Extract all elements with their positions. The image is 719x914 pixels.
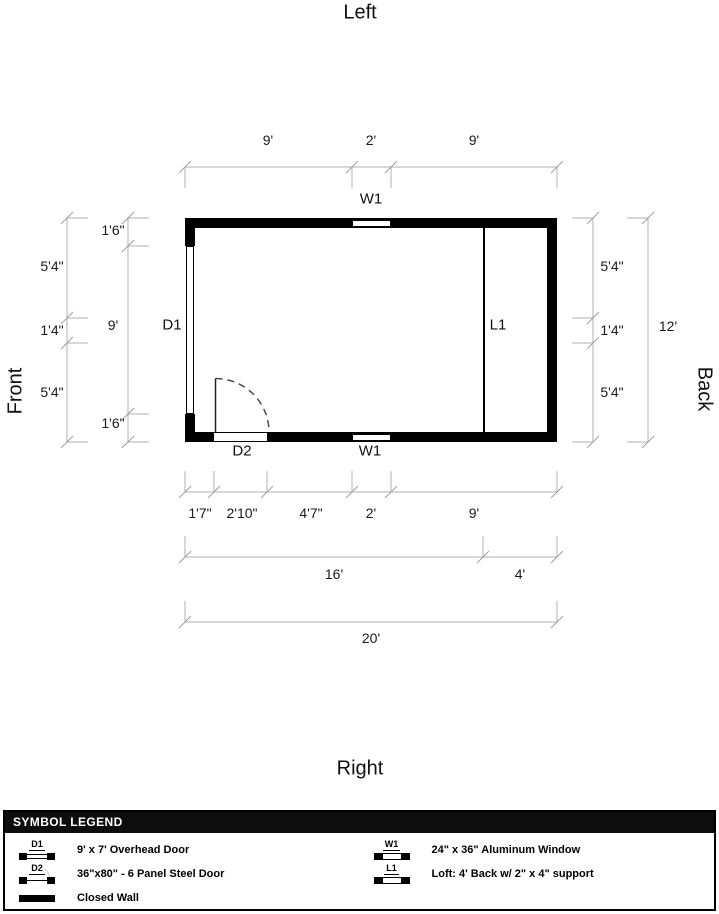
steel-door-icon: D2 <box>19 864 55 884</box>
window-w1-top-label: W1 <box>360 191 383 208</box>
dimension-slash-ticks <box>61 161 654 628</box>
legend-body: D1 9' x 7' Overhead Door D2 36" <box>5 833 714 910</box>
orientation-label-right-side: Right <box>337 758 384 781</box>
dimension-label: 5'4" <box>600 258 623 274</box>
legend-column-left: D1 9' x 7' Overhead Door D2 36" <box>5 838 360 910</box>
floorplan-drawing <box>0 0 719 700</box>
openings-and-fixtures <box>185 221 484 443</box>
symbol-legend: SYMBOL LEGEND D1 9' x 7' Overhead Door <box>3 810 716 911</box>
overhead-door-icon: D1 <box>19 840 55 860</box>
dimension-label: 5'4" <box>600 384 623 400</box>
legend-header: SYMBOL LEGEND <box>5 812 714 833</box>
window-icon: W1 <box>374 840 410 860</box>
dimension-label: 9' <box>469 132 479 148</box>
steel-door-d2-label: D2 <box>232 443 251 460</box>
legend-symbol-code: L1 <box>384 864 399 875</box>
dimension-label: 5'4" <box>40 258 63 274</box>
dimension-label: 2' <box>366 132 376 148</box>
dimension-label: 20' <box>362 630 380 646</box>
dimension-label: 2'10" <box>226 505 257 521</box>
dimension-label: 2' <box>366 505 376 521</box>
legend-item-overhead-door: D1 9' x 7' Overhead Door <box>19 838 360 862</box>
legend-column-right: W1 24" x 36" Aluminum Window L1 Loft: 4'… <box>360 838 715 910</box>
dimension-label: 4'7" <box>299 505 322 521</box>
dimension-label: 1'4" <box>600 322 623 338</box>
legend-item-steel-door: D2 36"x80" - 6 Panel Steel Door <box>19 862 360 886</box>
legend-item-description: Closed Wall <box>77 892 139 904</box>
dimension-label: 1'7" <box>188 505 211 521</box>
dimension-label: 16' <box>325 566 343 582</box>
legend-item-description: Loft: 4' Back w/ 2" x 4" support <box>432 868 594 880</box>
steel-door-d2-opening <box>214 432 267 442</box>
dimension-label: 1'4" <box>40 322 63 338</box>
overhead-door-d1-panel <box>187 247 194 414</box>
dimension-label: 9' <box>263 132 273 148</box>
legend-item-description: 9' x 7' Overhead Door <box>77 844 189 856</box>
dimension-label: 9' <box>469 505 479 521</box>
dimension-lines <box>61 161 654 628</box>
window-w1-bottom-label: W1 <box>359 443 382 460</box>
dimension-label: 1'6" <box>101 222 124 238</box>
legend-item-window: W1 24" x 36" Aluminum Window <box>374 838 715 862</box>
loft-l1-label: L1 <box>490 317 507 334</box>
legend-item-description: 24" x 36" Aluminum Window <box>432 844 581 856</box>
overhead-door-d1-label: D1 <box>162 317 181 334</box>
legend-symbol-code: W1 <box>383 840 401 851</box>
closed-wall-icon <box>19 895 55 902</box>
legend-symbol-code: D1 <box>29 840 45 851</box>
window-w1-bottom <box>353 435 391 441</box>
dimension-label: 1'6" <box>101 415 124 431</box>
dimension-label: 4' <box>515 566 525 582</box>
legend-item-closed-wall: Closed Wall <box>19 886 360 910</box>
dimension-label: 12' <box>659 318 677 334</box>
legend-symbol-code: D2 <box>29 864 45 875</box>
dimension-label: 9' <box>108 317 118 333</box>
legend-item-loft: L1 Loft: 4' Back w/ 2" x 4" support <box>374 862 715 886</box>
legend-title: SYMBOL LEGEND <box>13 815 123 829</box>
steel-door-d2-swing-arc <box>216 379 270 433</box>
legend-item-description: 36"x80" - 6 Panel Steel Door <box>77 868 224 880</box>
wall-back <box>547 218 557 442</box>
loft-icon: L1 <box>374 864 410 884</box>
window-w1-top <box>353 221 391 227</box>
dimension-label: 5'4" <box>40 384 63 400</box>
